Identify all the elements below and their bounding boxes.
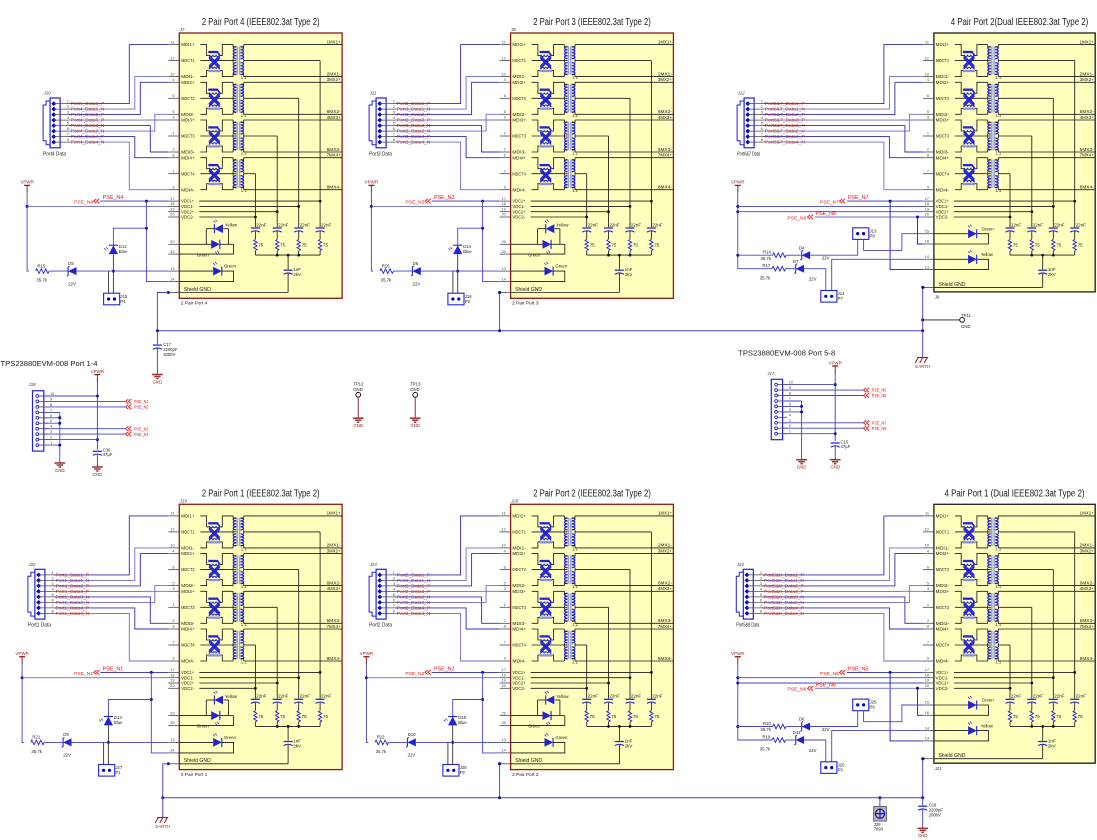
svg-text:22V: 22V xyxy=(822,256,830,261)
svg-text:2: 2 xyxy=(393,104,395,109)
svg-text:16: 16 xyxy=(925,239,929,244)
svg-text:Shield GND: Shield GND xyxy=(938,282,965,288)
svg-text:8: 8 xyxy=(172,624,174,629)
svg-text:J11: J11 xyxy=(369,91,377,96)
svg-text:11: 11 xyxy=(170,39,174,44)
svg-text:6MX2-: 6MX2- xyxy=(658,109,673,114)
svg-text:3MX2+: 3MX2+ xyxy=(1080,77,1094,82)
svg-text:Port5&8_Data1_P: Port5&8_Data1_P xyxy=(764,572,804,577)
svg-text:1: 1 xyxy=(172,131,174,136)
svg-text:7: 7 xyxy=(927,640,929,645)
svg-text:GND: GND xyxy=(410,423,420,428)
svg-text:9: 9 xyxy=(927,184,929,189)
svg-text:1:1: 1:1 xyxy=(572,188,578,193)
svg-text:35: 35 xyxy=(501,249,505,254)
svg-text:Port2_Data1_N: Port2_Data1_N xyxy=(397,578,431,583)
svg-text:2kV: 2kV xyxy=(1048,744,1056,749)
svg-text:3: 3 xyxy=(927,586,929,591)
svg-text:Port4_Data3_P: Port4_Data3_P xyxy=(71,118,105,123)
svg-text:D10: D10 xyxy=(408,732,416,737)
svg-text:5: 5 xyxy=(172,580,174,585)
svg-text:29: 29 xyxy=(170,239,174,244)
svg-text:MDCT2: MDCT2 xyxy=(181,567,195,572)
svg-text:8MX4-: 8MX4- xyxy=(658,185,673,190)
svg-text:2 Pair Port 1 (IEEE802.3at Typ: 2 Pair Port 1 (IEEE802.3at Type 2) xyxy=(202,488,320,499)
svg-text:8: 8 xyxy=(52,608,54,613)
svg-text:MDI1-: MDI1- xyxy=(936,74,950,79)
svg-text:2MX1-: 2MX1- xyxy=(658,71,673,76)
svg-text:VPWR: VPWR xyxy=(15,651,29,656)
svg-text:Port5&8_Data2_P: Port5&8_Data2_P xyxy=(764,583,804,588)
svg-text:1:1: 1:1 xyxy=(995,584,1001,589)
svg-text:3: 3 xyxy=(393,581,395,586)
svg-text:1MX1+: 1MX1+ xyxy=(327,39,341,44)
svg-text:2MX1-: 2MX1- xyxy=(1080,543,1095,548)
svg-text:2: 2 xyxy=(504,147,506,152)
svg-text:PSE_N8: PSE_N8 xyxy=(787,215,807,220)
svg-text:Port3_Data4_P: Port3_Data4_P xyxy=(397,134,431,139)
svg-text:Green: Green xyxy=(224,264,237,269)
svg-text:11: 11 xyxy=(925,39,929,44)
svg-text:MDI4-: MDI4- xyxy=(936,659,950,664)
svg-text:Port1_Data4_P: Port1_Data4_P xyxy=(56,605,90,610)
svg-text:29: 29 xyxy=(501,710,505,715)
svg-text:Port3_Data2_P: Port3_Data2_P xyxy=(397,112,431,117)
svg-text:9: 9 xyxy=(504,184,506,189)
svg-text:MDCT1: MDCT1 xyxy=(512,530,526,535)
svg-text:12: 12 xyxy=(501,527,505,532)
svg-text:VDC1-: VDC1- xyxy=(936,675,950,680)
svg-text:8MX4-: 8MX4- xyxy=(327,185,342,190)
svg-text:J18: J18 xyxy=(28,382,37,387)
svg-text:MDI3-: MDI3- xyxy=(512,621,526,626)
svg-text:5MX3-: 5MX3- xyxy=(658,147,673,152)
svg-text:Port5&8 Data: Port5&8 Data xyxy=(736,623,759,629)
svg-text:1:1: 1:1 xyxy=(241,546,247,551)
svg-text:2MX1-: 2MX1- xyxy=(1080,71,1095,76)
svg-text:MDI2+: MDI2+ xyxy=(936,80,950,85)
svg-text:J20: J20 xyxy=(510,499,519,504)
svg-text:Port6&7_Data1_P: Port6&7_Data1_P xyxy=(765,101,805,106)
svg-text:22nF: 22nF xyxy=(588,694,599,699)
svg-text:1:1: 1:1 xyxy=(241,188,247,193)
svg-text:MDI3+: MDI3+ xyxy=(181,118,195,123)
svg-text:3: 3 xyxy=(761,110,763,115)
svg-text:Green: Green xyxy=(528,724,541,729)
svg-text:MDI4-: MDI4- xyxy=(936,187,950,192)
svg-text:17: 17 xyxy=(501,667,505,672)
svg-text:Port2_Data4_N: Port2_Data4_N xyxy=(397,611,431,616)
svg-text:MDCT3: MDCT3 xyxy=(512,134,526,139)
svg-text:22V: 22V xyxy=(68,281,76,286)
svg-text:22nF: 22nF xyxy=(321,222,332,227)
svg-text:MDI4-: MDI4- xyxy=(512,187,526,192)
svg-text:2: 2 xyxy=(67,104,69,109)
svg-text:R15: R15 xyxy=(37,263,45,268)
svg-text:5: 5 xyxy=(50,418,52,423)
svg-text:3MX2+: 3MX2+ xyxy=(658,548,672,553)
svg-text:VDC1+: VDC1+ xyxy=(936,670,950,675)
svg-text:9: 9 xyxy=(50,396,52,401)
svg-text:75: 75 xyxy=(1056,714,1062,719)
svg-text:1: 1 xyxy=(504,602,506,607)
svg-text:Port5&8_Data1_N: Port5&8_Data1_N xyxy=(764,578,804,583)
svg-text:1:1: 1:1 xyxy=(995,113,1001,118)
svg-text:3MX2+: 3MX2+ xyxy=(1080,548,1094,553)
svg-text:PSE_N6: PSE_N6 xyxy=(787,687,807,692)
svg-text:PSE_N5: PSE_N5 xyxy=(848,667,869,673)
svg-text:5MX3-: 5MX3- xyxy=(1080,147,1095,152)
svg-text:PSE_N1: PSE_N1 xyxy=(134,399,149,404)
svg-text:2 Pair Port 2 (IEEE802.3at Typ: 2 Pair Port 2 (IEEE802.3at Type 2) xyxy=(533,488,651,499)
svg-text:2MX1-: 2MX1- xyxy=(658,543,673,548)
svg-text:35.7k: 35.7k xyxy=(760,256,771,261)
svg-text:MDI4-: MDI4- xyxy=(181,659,195,664)
svg-text:12: 12 xyxy=(925,55,929,60)
svg-text:J9: J9 xyxy=(935,295,940,300)
svg-text:6: 6 xyxy=(172,93,174,98)
svg-text:Yellow: Yellow xyxy=(556,694,569,699)
svg-text:6MX2-: 6MX2- xyxy=(1080,580,1095,585)
svg-text:2 Pair Port 3 (IEEE802.3at Typ: 2 Pair Port 3 (IEEE802.3at Type 2) xyxy=(533,17,651,28)
svg-text:R14: R14 xyxy=(763,250,771,255)
svg-text:75: 75 xyxy=(323,243,329,248)
svg-text:GND: GND xyxy=(410,387,420,392)
svg-text:MDI2+: MDI2+ xyxy=(181,551,195,556)
svg-text:1:1: 1:1 xyxy=(572,546,578,551)
svg-text:7MX4+: 7MX4+ xyxy=(1080,153,1094,158)
svg-text:22nF: 22nF xyxy=(300,694,311,699)
svg-text:GND: GND xyxy=(797,465,807,470)
svg-text:6MX2-: 6MX2- xyxy=(658,580,673,585)
svg-text:6: 6 xyxy=(504,93,506,98)
svg-text:2kV: 2kV xyxy=(625,272,633,277)
svg-text:1MX1+: 1MX1+ xyxy=(327,511,341,516)
svg-text:P5: P5 xyxy=(838,767,844,772)
svg-text:22nF: 22nF xyxy=(1033,694,1044,699)
svg-text:MDI4+: MDI4+ xyxy=(936,155,950,160)
svg-text:PSE_N5: PSE_N5 xyxy=(820,671,840,676)
svg-text:17: 17 xyxy=(170,196,174,201)
svg-text:VDC1-: VDC1- xyxy=(512,675,526,680)
svg-text:1: 1 xyxy=(393,570,395,575)
svg-text:TPS23880EVM-008 Port 1-4: TPS23880EVM-008 Port 1-4 xyxy=(1,361,98,368)
svg-text:J21: J21 xyxy=(935,766,943,771)
svg-text:J22: J22 xyxy=(27,562,36,567)
svg-text:7: 7 xyxy=(67,132,69,137)
svg-text:MDCT2: MDCT2 xyxy=(181,96,195,101)
svg-text:1:1: 1:1 xyxy=(241,151,247,156)
svg-text:Port6&7_Data3_N: Port6&7_Data3_N xyxy=(765,123,805,128)
svg-text:22nF: 22nF xyxy=(609,222,620,227)
svg-text:75: 75 xyxy=(1035,243,1041,248)
svg-text:3: 3 xyxy=(172,586,174,591)
svg-text:75: 75 xyxy=(654,714,660,719)
svg-text:J10: J10 xyxy=(43,91,52,96)
svg-text:Yellow: Yellow xyxy=(225,223,238,228)
svg-text:PSE_N8: PSE_N8 xyxy=(872,426,887,431)
svg-text:J8: J8 xyxy=(510,27,516,32)
svg-text:13: 13 xyxy=(170,266,174,271)
svg-text:J19: J19 xyxy=(179,499,188,504)
svg-text:8: 8 xyxy=(67,137,69,142)
svg-text:PSE_N7: PSE_N7 xyxy=(872,420,887,425)
svg-text:5: 5 xyxy=(52,592,54,597)
svg-text:Port5&8_Data2_N: Port5&8_Data2_N xyxy=(764,600,804,605)
svg-text:3MX2+: 3MX2+ xyxy=(327,77,341,82)
svg-text:17: 17 xyxy=(925,196,929,201)
svg-text:13: 13 xyxy=(170,737,174,742)
svg-text:Port6&7_Data3_P: Port6&7_Data3_P xyxy=(765,118,805,123)
svg-text:75: 75 xyxy=(633,714,639,719)
svg-text:5MX3-: 5MX3- xyxy=(327,618,342,623)
svg-text:VDC2-: VDC2- xyxy=(936,686,950,691)
svg-text:R19: R19 xyxy=(762,734,770,739)
svg-text:PSE_N2: PSE_N2 xyxy=(405,671,425,676)
svg-text:P7: P7 xyxy=(838,296,844,301)
svg-text:Port2_Data4_P: Port2_Data4_P xyxy=(397,605,431,610)
svg-text:P1: P1 xyxy=(115,770,121,775)
svg-text:1:1: 1:1 xyxy=(572,584,578,589)
svg-text:Port6&7_Data1_N: Port6&7_Data1_N xyxy=(765,107,805,112)
svg-text:15: 15 xyxy=(925,700,929,705)
svg-text:22nF: 22nF xyxy=(1076,694,1087,699)
svg-text:Port4_Data2_N: Port4_Data2_N xyxy=(71,129,105,134)
svg-text:12: 12 xyxy=(170,55,174,60)
svg-text:3MX2+: 3MX2+ xyxy=(658,77,672,82)
svg-text:19: 19 xyxy=(501,678,505,683)
svg-text:VPWR: VPWR xyxy=(365,180,379,185)
svg-text:7693: 7693 xyxy=(874,827,884,832)
svg-text:Port3_Data2_N: Port3_Data2_N xyxy=(397,129,431,134)
svg-text:22nF: 22nF xyxy=(278,222,289,227)
svg-text:VDC2+: VDC2+ xyxy=(181,209,195,214)
svg-text:MDCT2: MDCT2 xyxy=(936,96,950,101)
svg-text:MDI3-: MDI3- xyxy=(512,150,526,155)
svg-text:22V: 22V xyxy=(822,727,830,732)
svg-text:Green: Green xyxy=(555,264,568,269)
svg-text:7MX4+: 7MX4+ xyxy=(658,153,672,158)
svg-text:P8: P8 xyxy=(870,233,876,238)
svg-text:Yellow: Yellow xyxy=(556,223,569,228)
svg-text:13: 13 xyxy=(925,264,929,269)
svg-text:PSE_N2: PSE_N2 xyxy=(134,405,149,410)
svg-text:MDI2-: MDI2- xyxy=(181,112,195,117)
svg-text:11: 11 xyxy=(502,511,506,516)
svg-text:4 Pair Port 2(Dual IEEE802.3at: 4 Pair Port 2(Dual IEEE802.3at Type 2) xyxy=(951,17,1089,28)
svg-text:PSE_N8: PSE_N8 xyxy=(816,211,837,217)
svg-text:35.7k: 35.7k xyxy=(760,747,771,752)
svg-text:5: 5 xyxy=(761,121,763,126)
svg-text:MDCT4: MDCT4 xyxy=(181,171,195,176)
svg-text:TP13: TP13 xyxy=(410,381,421,386)
svg-text:GND: GND xyxy=(93,472,103,477)
svg-text:MDI2-: MDI2- xyxy=(512,112,526,117)
svg-text:MDI1-: MDI1- xyxy=(181,546,195,551)
svg-text:75: 75 xyxy=(654,243,660,248)
svg-text:J7: J7 xyxy=(179,27,185,32)
svg-text:Port3_Data4_N: Port3_Data4_N xyxy=(397,140,431,145)
svg-text:22V: 22V xyxy=(809,277,817,282)
svg-text:2: 2 xyxy=(172,147,174,152)
svg-text:5: 5 xyxy=(927,109,929,114)
svg-text:2 Pair Port 2: 2 Pair Port 2 xyxy=(512,772,539,778)
svg-text:1:1: 1:1 xyxy=(995,151,1001,156)
svg-text:MDCT3: MDCT3 xyxy=(181,605,195,610)
svg-text:Green: Green xyxy=(528,252,541,257)
svg-text:VDC1+: VDC1+ xyxy=(512,670,526,675)
svg-text:MDCT4: MDCT4 xyxy=(936,643,950,648)
svg-text:7MX4+: 7MX4+ xyxy=(1080,624,1094,629)
svg-text:5MX3-: 5MX3- xyxy=(1080,618,1095,623)
svg-text:2: 2 xyxy=(789,423,791,428)
svg-text:MDI1-: MDI1- xyxy=(936,546,950,551)
svg-text:D8: D8 xyxy=(799,717,805,722)
svg-text:8: 8 xyxy=(50,402,52,407)
svg-text:22nF: 22nF xyxy=(1033,222,1044,227)
svg-text:1:1: 1:1 xyxy=(572,660,578,665)
svg-text:P3: P3 xyxy=(465,299,471,304)
svg-text:22nF: 22nF xyxy=(609,694,620,699)
svg-text:MDI3-: MDI3- xyxy=(936,150,950,155)
svg-text:35: 35 xyxy=(170,249,174,254)
svg-text:19: 19 xyxy=(501,206,505,211)
svg-text:PSE_N4: PSE_N4 xyxy=(74,200,94,205)
svg-text:TPS23880EVM-008 Port 5-8: TPS23880EVM-008 Port 5-8 xyxy=(738,350,835,357)
svg-text:12: 12 xyxy=(925,527,929,532)
svg-text:75: 75 xyxy=(302,243,308,248)
svg-text:11: 11 xyxy=(170,511,174,516)
svg-text:GND: GND xyxy=(961,324,971,329)
svg-text:VDC1-: VDC1- xyxy=(181,675,195,680)
svg-text:VDC2+: VDC2+ xyxy=(181,681,195,686)
svg-text:Green: Green xyxy=(197,252,210,257)
svg-text:VDC2+: VDC2+ xyxy=(512,209,526,214)
svg-text:VDC1+: VDC1+ xyxy=(936,199,950,204)
svg-text:2: 2 xyxy=(927,618,929,623)
svg-text:5MX3-: 5MX3- xyxy=(658,618,673,623)
svg-text:2kV: 2kV xyxy=(625,744,633,749)
svg-text:22nF: 22nF xyxy=(1076,222,1087,227)
svg-text:MDI3+: MDI3+ xyxy=(512,589,526,594)
svg-text:MDI4+: MDI4+ xyxy=(512,155,526,160)
svg-text:D11: D11 xyxy=(793,730,801,735)
svg-text:R20: R20 xyxy=(763,721,771,726)
svg-text:7: 7 xyxy=(172,168,174,173)
svg-text:Blue: Blue xyxy=(119,249,128,254)
svg-text:1:1: 1:1 xyxy=(241,75,247,80)
svg-text:Port6&7_Data2_N: Port6&7_Data2_N xyxy=(765,129,805,134)
svg-text:Blue: Blue xyxy=(463,249,472,254)
svg-text:Port6&7 Data: Port6&7 Data xyxy=(737,151,760,157)
svg-text:75: 75 xyxy=(611,243,617,248)
svg-text:17: 17 xyxy=(501,196,505,201)
svg-text:Port2_Data2_N: Port2_Data2_N xyxy=(397,600,431,605)
svg-text:VDC1+: VDC1+ xyxy=(181,199,195,204)
svg-text:GND: GND xyxy=(353,387,363,392)
svg-text:1: 1 xyxy=(789,429,791,434)
svg-text:7: 7 xyxy=(504,640,506,645)
svg-text:PSE_N1: PSE_N1 xyxy=(103,667,124,673)
svg-text:6: 6 xyxy=(504,564,506,569)
svg-text:18: 18 xyxy=(501,201,505,206)
svg-text:MDCT4: MDCT4 xyxy=(512,171,526,176)
svg-text:Port2_Data3_P: Port2_Data3_P xyxy=(397,589,431,594)
svg-text:MDCT1: MDCT1 xyxy=(181,58,195,63)
svg-text:Port3_Data3_P: Port3_Data3_P xyxy=(397,118,431,123)
svg-text:Port4_Data1_P: Port4_Data1_P xyxy=(71,101,105,106)
svg-text:35.7k: 35.7k xyxy=(376,749,387,754)
svg-text:7: 7 xyxy=(393,132,395,137)
svg-text:22nF: 22nF xyxy=(1054,694,1065,699)
svg-text:8: 8 xyxy=(393,608,395,613)
svg-text:8: 8 xyxy=(760,608,762,613)
svg-text:5: 5 xyxy=(760,592,762,597)
svg-text:Shield GND: Shield GND xyxy=(938,753,965,759)
svg-text:1: 1 xyxy=(52,570,54,575)
svg-text:7: 7 xyxy=(760,603,762,608)
svg-text:2kV: 2kV xyxy=(1048,272,1056,277)
svg-text:R22: R22 xyxy=(377,735,385,740)
svg-text:7: 7 xyxy=(761,132,763,137)
svg-text:8MX4-: 8MX4- xyxy=(327,656,342,661)
svg-text:1:1: 1:1 xyxy=(995,546,1001,551)
svg-text:6: 6 xyxy=(761,126,763,131)
svg-text:7: 7 xyxy=(172,640,174,645)
svg-text:19: 19 xyxy=(925,206,929,211)
svg-text:75: 75 xyxy=(1078,714,1084,719)
svg-text:3: 3 xyxy=(172,115,174,120)
svg-text:7: 7 xyxy=(393,603,395,608)
svg-text:1:1: 1:1 xyxy=(572,151,578,156)
svg-text:VDC2-: VDC2- xyxy=(181,686,195,691)
svg-text:75: 75 xyxy=(1035,714,1041,719)
svg-text:Green: Green xyxy=(555,735,568,740)
svg-text:MDI3+: MDI3+ xyxy=(181,589,195,594)
svg-text:6: 6 xyxy=(927,93,929,98)
svg-text:VPWR: VPWR xyxy=(91,369,105,374)
svg-text:3: 3 xyxy=(67,110,69,115)
svg-text:MDI3+: MDI3+ xyxy=(936,118,950,123)
svg-text:Shield GND: Shield GND xyxy=(184,287,211,293)
svg-text:GND: GND xyxy=(353,423,363,428)
svg-text:PSE_N2: PSE_N2 xyxy=(434,667,455,673)
svg-text:MDCT2: MDCT2 xyxy=(512,567,526,572)
svg-text:18: 18 xyxy=(170,201,174,206)
svg-text:J17: J17 xyxy=(766,371,775,376)
svg-text:Port2 Data: Port2 Data xyxy=(369,623,392,629)
svg-text:35: 35 xyxy=(170,720,174,725)
svg-text:PSE_N4: PSE_N4 xyxy=(134,432,149,437)
svg-text:7MX4+: 7MX4+ xyxy=(327,153,341,158)
svg-text:18: 18 xyxy=(170,672,174,677)
svg-text:22nF: 22nF xyxy=(652,222,663,227)
svg-text:2000V: 2000V xyxy=(163,352,175,357)
svg-text:PSE_N7: PSE_N7 xyxy=(848,195,869,201)
svg-text:D4: D4 xyxy=(799,245,805,250)
svg-text:J24: J24 xyxy=(736,562,745,567)
svg-text:2 Pair Port 3: 2 Pair Port 3 xyxy=(512,301,539,307)
svg-text:47µF: 47µF xyxy=(841,444,851,449)
svg-text:MDCT1: MDCT1 xyxy=(181,530,195,535)
svg-text:22V: 22V xyxy=(408,753,416,758)
svg-text:GND: GND xyxy=(153,379,163,384)
svg-text:VDC1-: VDC1- xyxy=(512,204,526,209)
svg-text:22nF: 22nF xyxy=(278,694,289,699)
svg-text:7: 7 xyxy=(52,603,54,608)
svg-text:12: 12 xyxy=(501,55,505,60)
svg-text:MDI1+: MDI1+ xyxy=(512,42,526,47)
